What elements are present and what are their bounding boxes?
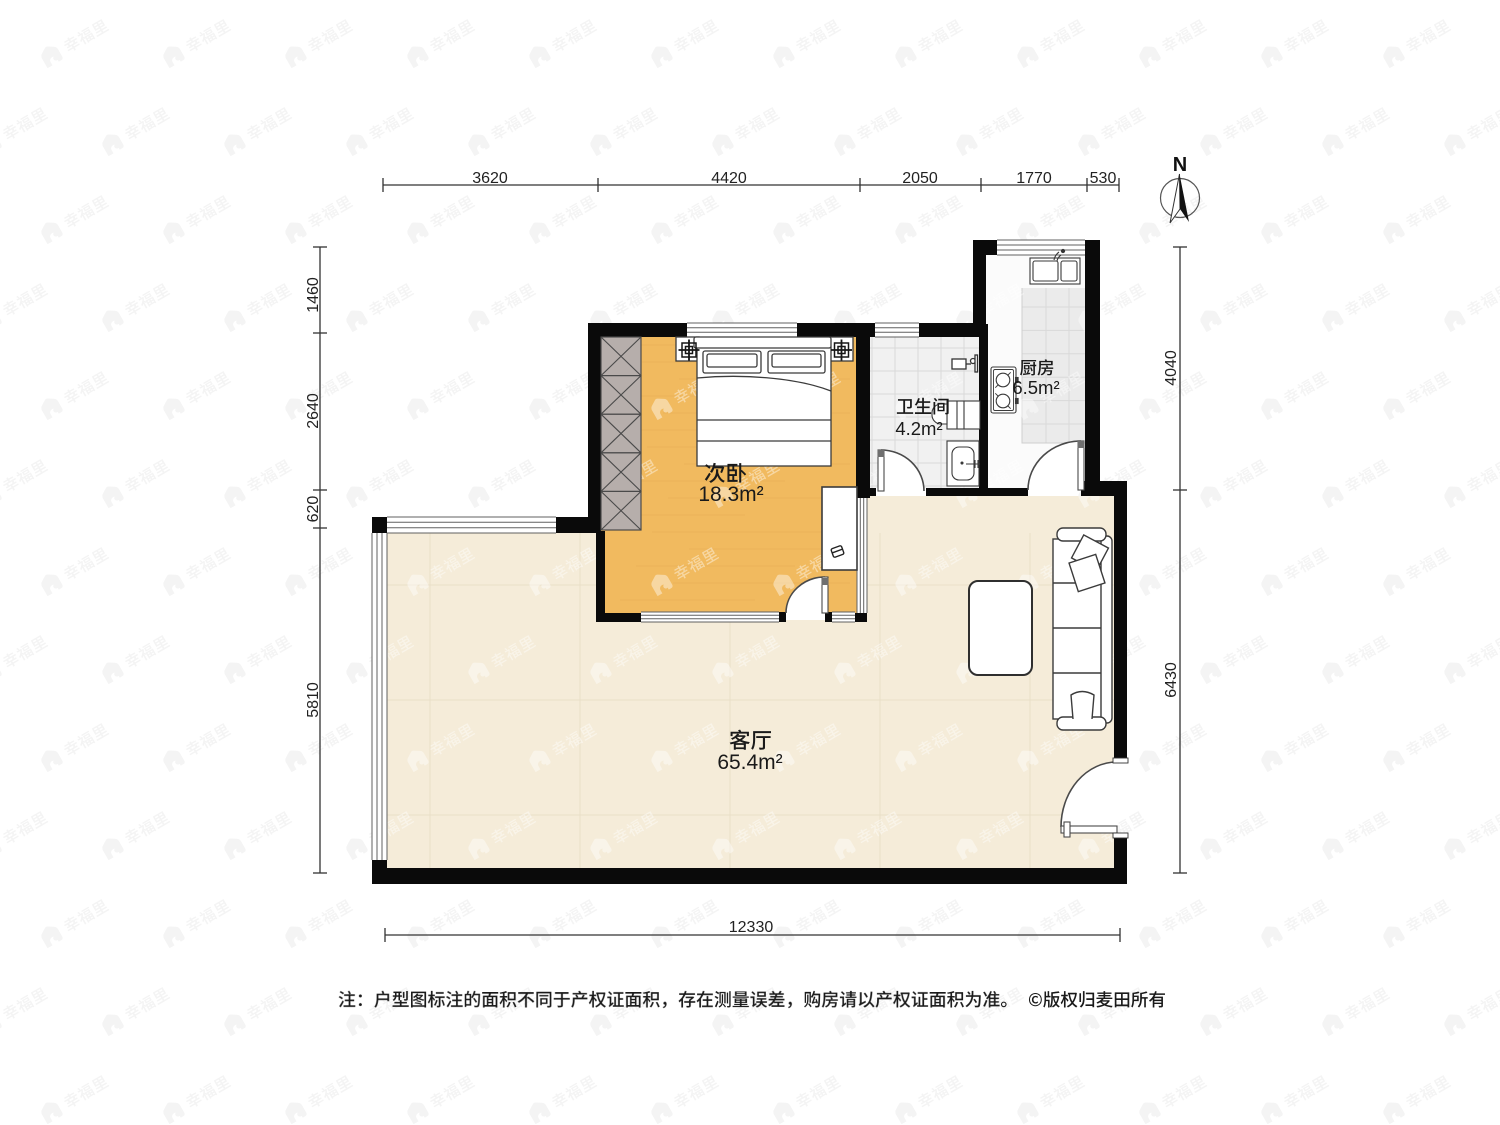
svg-text:3620: 3620 bbox=[472, 170, 508, 187]
svg-text:1460: 1460 bbox=[305, 277, 322, 313]
svg-text:5810: 5810 bbox=[305, 682, 322, 718]
svg-text:530: 530 bbox=[1090, 170, 1117, 187]
svg-text:18.3m²: 18.3m² bbox=[698, 483, 763, 506]
svg-text:2050: 2050 bbox=[902, 170, 938, 187]
svg-text:2640: 2640 bbox=[305, 393, 322, 429]
svg-text:12330: 12330 bbox=[729, 919, 774, 936]
svg-text:4040: 4040 bbox=[1163, 350, 1180, 386]
svg-text:65.4m²: 65.4m² bbox=[717, 751, 782, 774]
svg-text:1770: 1770 bbox=[1016, 170, 1052, 187]
svg-text:6430: 6430 bbox=[1163, 662, 1180, 698]
svg-text:6.5m²: 6.5m² bbox=[1012, 377, 1059, 398]
svg-text:4.2m²: 4.2m² bbox=[895, 418, 942, 439]
svg-text:620: 620 bbox=[305, 496, 322, 523]
svg-text:N: N bbox=[1173, 154, 1187, 176]
svg-text:4420: 4420 bbox=[711, 170, 747, 187]
